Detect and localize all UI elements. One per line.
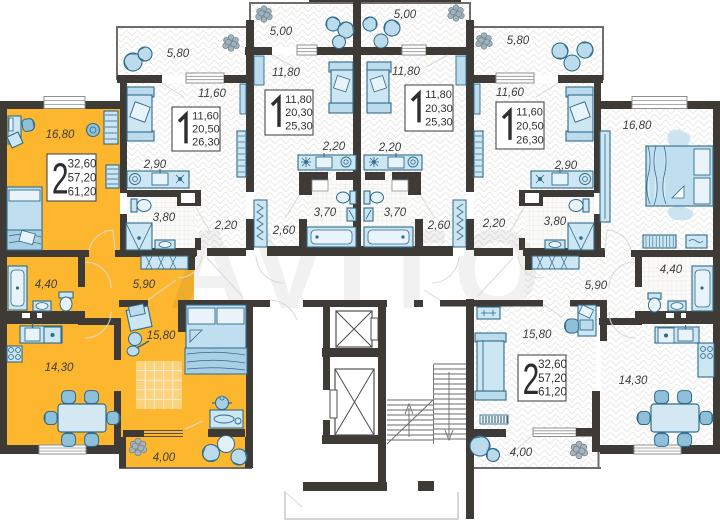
svg-text:11,60: 11,60 <box>496 87 525 99</box>
svg-text:5,00: 5,00 <box>394 9 417 21</box>
svg-text:5,80: 5,80 <box>167 48 190 60</box>
svg-text:3,70: 3,70 <box>314 207 337 219</box>
svg-text:11,80: 11,80 <box>392 66 421 78</box>
svg-text:11,60: 11,60 <box>192 111 219 123</box>
svg-text:2,60: 2,60 <box>272 225 296 237</box>
svg-text:32,60: 32,60 <box>68 158 97 170</box>
svg-text:11,60: 11,60 <box>516 106 543 118</box>
svg-text:5,90: 5,90 <box>133 279 156 291</box>
svg-text:26,30: 26,30 <box>192 137 220 149</box>
svg-text:25,30: 25,30 <box>285 121 313 133</box>
svg-text:16,80: 16,80 <box>623 120 652 132</box>
svg-text:20,30: 20,30 <box>285 107 313 119</box>
svg-text:11,80: 11,80 <box>272 67 301 79</box>
svg-text:2,90: 2,90 <box>554 160 578 172</box>
svg-text:16,80: 16,80 <box>46 129 75 141</box>
svg-text:25,30: 25,30 <box>425 117 453 129</box>
svg-text:3,80: 3,80 <box>544 216 567 228</box>
svg-text:61,20: 61,20 <box>538 387 567 399</box>
svg-text:15,80: 15,80 <box>147 330 176 342</box>
svg-text:5,90: 5,90 <box>585 280 608 292</box>
svg-text:20,30: 20,30 <box>425 103 453 115</box>
svg-text:11,80: 11,80 <box>425 89 452 101</box>
svg-text:26,30: 26,30 <box>516 134 544 146</box>
svg-text:4,00: 4,00 <box>510 447 533 459</box>
svg-text:2,20: 2,20 <box>378 142 402 154</box>
svg-text:2,20: 2,20 <box>322 141 346 153</box>
svg-text:14,30: 14,30 <box>619 375 648 387</box>
svg-text:11,80: 11,80 <box>285 94 312 106</box>
svg-text:3,70: 3,70 <box>384 207 407 219</box>
svg-text:5,00: 5,00 <box>270 26 293 38</box>
svg-text:61,20: 61,20 <box>68 186 97 198</box>
svg-text:32,60: 32,60 <box>538 359 567 371</box>
svg-text:3,80: 3,80 <box>153 212 176 224</box>
svg-text:5,80: 5,80 <box>507 35 530 47</box>
svg-text:2: 2 <box>523 354 540 403</box>
svg-text:14,30: 14,30 <box>45 362 74 374</box>
svg-text:2,20: 2,20 <box>482 218 506 230</box>
svg-text:15,80: 15,80 <box>523 329 552 341</box>
svg-text:4,00: 4,00 <box>153 452 176 464</box>
svg-text:2,20: 2,20 <box>214 220 238 232</box>
svg-text:20,50: 20,50 <box>516 120 544 132</box>
svg-text:2: 2 <box>52 154 69 203</box>
svg-text:20,50: 20,50 <box>192 124 220 136</box>
svg-text:2,90: 2,90 <box>143 159 167 171</box>
svg-text:57,20: 57,20 <box>68 172 97 184</box>
svg-text:2,60: 2,60 <box>427 220 451 232</box>
svg-text:4,40: 4,40 <box>35 279 58 291</box>
svg-text:4,40: 4,40 <box>660 264 683 276</box>
svg-text:11,60: 11,60 <box>198 88 227 100</box>
svg-text:57,20: 57,20 <box>538 373 567 385</box>
